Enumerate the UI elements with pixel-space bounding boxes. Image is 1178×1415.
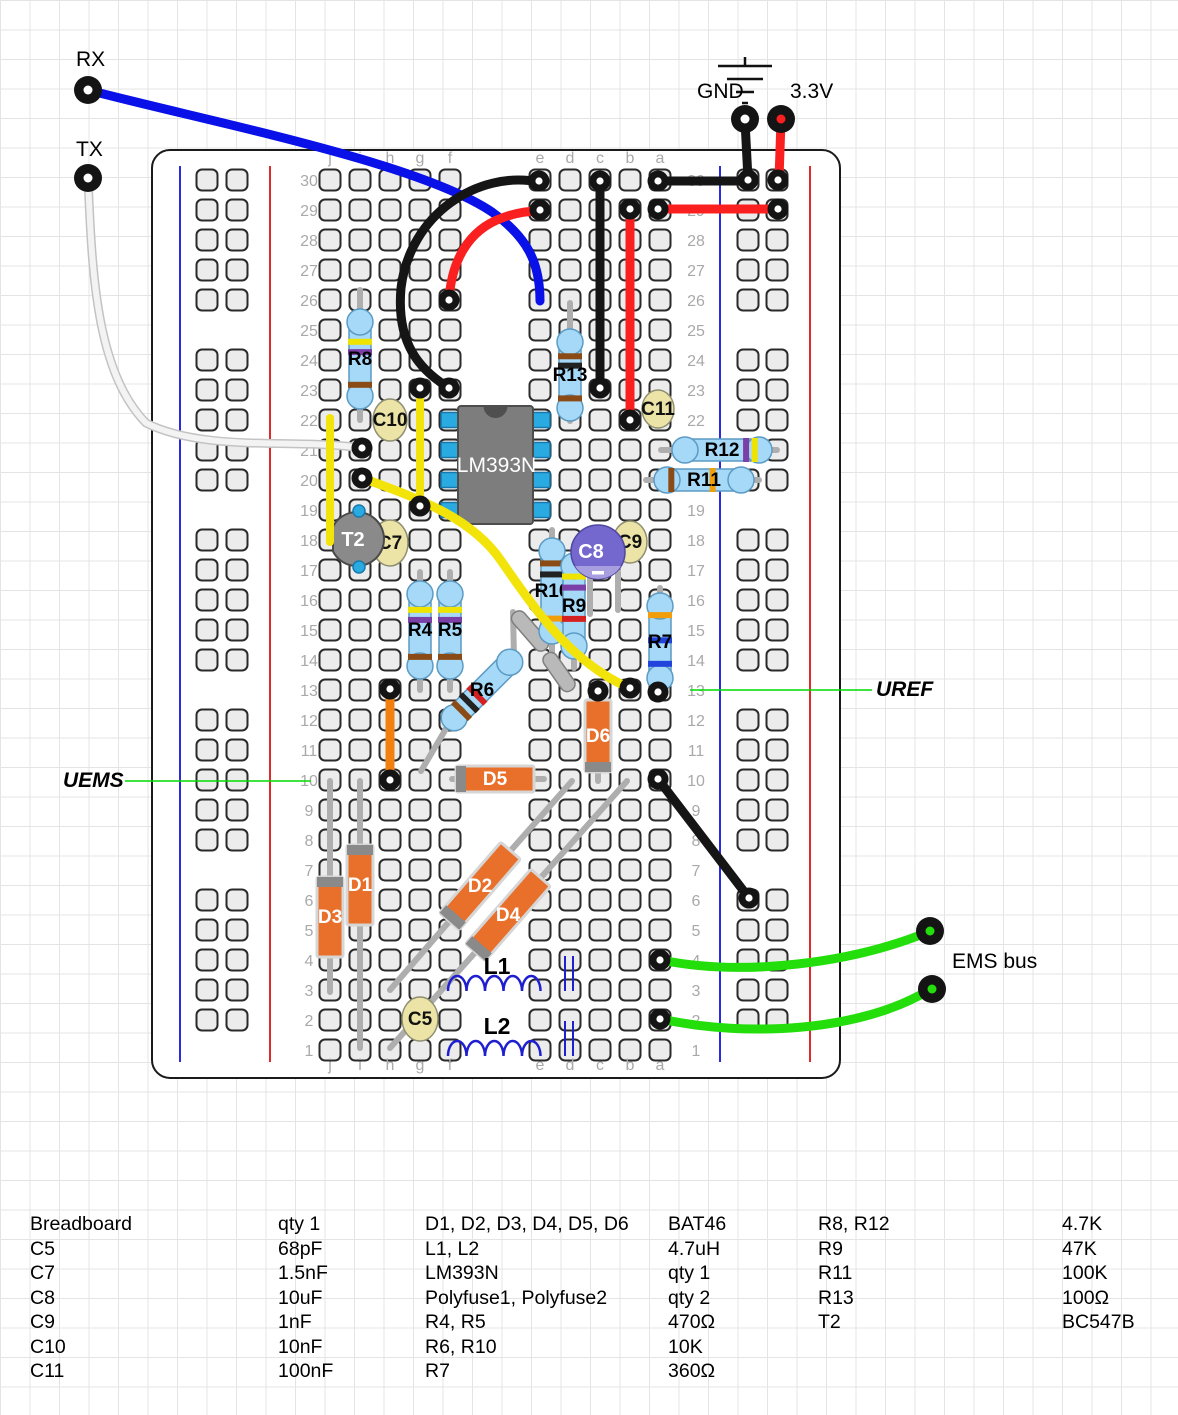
rail-hole xyxy=(738,920,759,941)
component-R12[interactable]: R12 xyxy=(672,437,772,463)
row-number: 13 xyxy=(300,683,318,700)
electrolytic-label: C8 xyxy=(578,541,604,563)
diode-label: D2 xyxy=(468,876,492,897)
breadboard-hole xyxy=(320,620,341,641)
rail-hole xyxy=(767,980,788,1001)
rail-hole xyxy=(197,650,218,671)
component-C8[interactable]: C8 xyxy=(571,525,625,579)
breadboard-hole xyxy=(620,1010,641,1031)
breadboard-hole xyxy=(590,830,611,851)
breadboard-hole xyxy=(590,620,611,641)
breadboard-hole xyxy=(650,710,671,731)
component-C10[interactable]: C10 xyxy=(373,399,408,441)
rail-hole xyxy=(197,560,218,581)
breadboard-hole xyxy=(320,260,341,281)
rail-hole xyxy=(738,380,759,401)
connection-dot-center xyxy=(656,956,663,963)
resistor-band xyxy=(668,468,674,492)
row-number: 17 xyxy=(300,563,318,580)
capacitor-label: C5 xyxy=(408,1009,433,1030)
row-number: 17 xyxy=(687,563,705,580)
rail-hole xyxy=(227,710,248,731)
parts-table-cell xyxy=(818,1335,890,1360)
parts-table-cell xyxy=(1062,1359,1135,1384)
row-number: 4 xyxy=(305,953,314,970)
breadboard-hole xyxy=(410,800,431,821)
connection-dot-center xyxy=(358,474,365,481)
connection-dot-center xyxy=(626,205,633,212)
component-C5[interactable]: C5 xyxy=(402,997,438,1041)
resistor-end xyxy=(407,581,433,607)
row-number: 28 xyxy=(687,233,705,250)
parts-table-cell: LM393N xyxy=(425,1261,629,1286)
component-LM393N[interactable]: LM393N xyxy=(441,406,550,524)
parts-table-cell: R8, R12 xyxy=(818,1212,890,1237)
rx-post-center xyxy=(84,86,93,95)
parts-table-column: qty 168pF1.5nF10uF1nF10nF100nF xyxy=(278,1212,333,1384)
row-number: 5 xyxy=(305,923,314,940)
rail-hole xyxy=(227,1010,248,1031)
column-letter: b xyxy=(626,150,635,167)
rail-hole xyxy=(197,830,218,851)
row-number: 15 xyxy=(687,623,705,640)
rail-hole xyxy=(227,230,248,251)
row-number: 23 xyxy=(687,383,705,400)
rail-hole xyxy=(197,980,218,1001)
column-letter: f xyxy=(448,1057,453,1074)
resistor-label: R5 xyxy=(438,620,463,641)
row-number: 20 xyxy=(300,473,318,490)
breadboard-hole xyxy=(350,620,371,641)
row-number: 22 xyxy=(687,413,705,430)
component-R11[interactable]: R11 xyxy=(654,467,754,493)
rail-hole xyxy=(197,950,218,971)
connection-dot-center xyxy=(386,685,393,692)
breadboard-hole xyxy=(620,830,641,851)
breadboard-hole xyxy=(650,290,671,311)
breadboard-hole xyxy=(320,320,341,341)
breadboard-hole xyxy=(620,710,641,731)
breadboard-hole xyxy=(320,170,341,191)
breadboard-hole xyxy=(590,980,611,1001)
diode-cathode-band xyxy=(317,877,343,887)
breadboard-hole xyxy=(440,320,461,341)
rail-hole xyxy=(227,740,248,761)
ems-post-2-center xyxy=(928,985,937,994)
row-number: 1 xyxy=(692,1043,701,1060)
row-number: 7 xyxy=(305,863,314,880)
rail-hole xyxy=(738,830,759,851)
parts-table-cell: qty 2 xyxy=(668,1286,726,1311)
breadboard-hole xyxy=(650,740,671,761)
inductor-label: L2 xyxy=(484,1013,511,1039)
parts-table-cell: qty 1 xyxy=(278,1212,333,1237)
breadboard-hole xyxy=(590,440,611,461)
column-letter: j xyxy=(327,1057,332,1074)
connection-dot-center xyxy=(594,687,601,694)
breadboard-hole xyxy=(590,470,611,491)
row-number: 7 xyxy=(692,863,701,880)
breadboard-hole xyxy=(620,860,641,881)
minus-mark xyxy=(592,571,604,575)
breadboard-hole xyxy=(590,500,611,521)
component-R7[interactable]: R7 xyxy=(647,593,673,691)
resistor-end xyxy=(539,538,565,564)
rail-hole xyxy=(227,470,248,491)
breadboard-hole xyxy=(560,800,581,821)
breadboard-hole xyxy=(410,260,431,281)
column-letter: c xyxy=(596,1057,604,1074)
rail-hole xyxy=(227,560,248,581)
rail-hole xyxy=(767,230,788,251)
gnd-post-center xyxy=(741,115,750,124)
rail-hole xyxy=(227,380,248,401)
breadboard-hole xyxy=(650,920,671,941)
parts-table-cell: 100Ω xyxy=(1062,1286,1135,1311)
row-number: 25 xyxy=(300,323,318,340)
breadboard-hole xyxy=(620,740,641,761)
breadboard-hole xyxy=(530,920,551,941)
breadboard-hole xyxy=(380,320,401,341)
parts-table-cell: C9 xyxy=(30,1310,132,1335)
breadboard-hole xyxy=(650,230,671,251)
breadboard-hole xyxy=(650,830,671,851)
rail-hole xyxy=(197,1010,218,1031)
rail-hole xyxy=(227,890,248,911)
connection-dot-center xyxy=(745,894,752,901)
column-letter: a xyxy=(656,150,665,167)
column-letter: d xyxy=(566,150,575,167)
rail-hole xyxy=(738,290,759,311)
circuit-canvas: jjiihhggffeeddccbbaa11223344556677889910… xyxy=(0,0,1178,1415)
tx-post-center xyxy=(84,174,93,183)
row-number: 6 xyxy=(692,893,701,910)
rail-hole xyxy=(197,350,218,371)
parts-table-cell: R11 xyxy=(818,1261,890,1286)
breadboard-hole xyxy=(440,230,461,251)
rail-hole xyxy=(767,770,788,791)
breadboard-hole xyxy=(440,350,461,371)
component-R4[interactable]: R4 xyxy=(407,581,433,679)
rail-hole xyxy=(197,800,218,821)
rail-hole xyxy=(767,620,788,641)
breadboard-hole xyxy=(620,470,641,491)
parts-table-cell xyxy=(1062,1335,1135,1360)
breadboard-hole xyxy=(350,740,371,761)
resistor-band xyxy=(752,438,758,462)
parts-table-column: BreadboardC5C7C8C9C10C11 xyxy=(30,1212,132,1384)
breadboard-hole xyxy=(530,950,551,971)
row-number: 3 xyxy=(692,983,701,1000)
row-number: 24 xyxy=(300,353,318,370)
rx-label: RX xyxy=(76,48,105,72)
rail-hole xyxy=(227,290,248,311)
breadboard-hole xyxy=(620,500,641,521)
breadboard-hole xyxy=(320,710,341,731)
breadboard-hole xyxy=(650,260,671,281)
breadboard-hole xyxy=(530,830,551,851)
component-R13[interactable]: R13 xyxy=(553,329,588,421)
rail-hole xyxy=(197,470,218,491)
ic-pin xyxy=(532,413,550,428)
breadboard-hole xyxy=(350,710,371,731)
breadboard-hole xyxy=(320,560,341,581)
connection-dot-center xyxy=(626,416,633,423)
breadboard-hole xyxy=(650,350,671,371)
rail-hole xyxy=(197,200,218,221)
breadboard-hole xyxy=(320,200,341,221)
diode-cathode-band xyxy=(585,762,611,772)
connection-dot-center xyxy=(774,176,781,183)
v33-label: 3.3V xyxy=(790,80,833,104)
breadboard-hole xyxy=(620,590,641,611)
resistor-band xyxy=(648,612,672,618)
rail-hole xyxy=(767,290,788,311)
column-letter: a xyxy=(656,1057,665,1074)
column-letter: h xyxy=(386,1057,395,1074)
parts-table-cell: 10nF xyxy=(278,1335,333,1360)
breadboard-hole xyxy=(620,800,641,821)
breadboard-hole xyxy=(410,710,431,731)
row-number: 11 xyxy=(301,743,318,760)
breadboard-hole xyxy=(530,710,551,731)
breadboard-hole xyxy=(590,860,611,881)
breadboard-hole xyxy=(440,800,461,821)
breadboard-hole xyxy=(410,290,431,311)
inductor-label: L1 xyxy=(484,953,511,979)
resistor-band xyxy=(348,339,372,345)
rail-hole xyxy=(227,410,248,431)
parts-table-cell: D1, D2, D3, D4, D5, D6 xyxy=(425,1212,629,1237)
capacitor-label: C11 xyxy=(641,399,675,420)
row-number: 12 xyxy=(687,713,705,730)
diode-label: D1 xyxy=(348,875,373,896)
row-number: 30 xyxy=(300,173,318,190)
breadboard-hole xyxy=(560,440,581,461)
breadboard-hole xyxy=(590,410,611,431)
ic-pin xyxy=(532,503,550,518)
diode-cathode-band xyxy=(456,766,466,792)
breadboard-hole xyxy=(320,680,341,701)
connection-dot-center xyxy=(536,206,543,213)
resistor-band xyxy=(562,585,586,591)
breadboard-hole xyxy=(320,590,341,611)
row-number: 2 xyxy=(305,1013,314,1030)
parts-table-column: BAT464.7uHqty 1qty 2470Ω10K360Ω xyxy=(668,1212,726,1384)
breadboard-hole xyxy=(440,740,461,761)
breadboard-hole xyxy=(560,470,581,491)
rail-hole xyxy=(738,980,759,1001)
ems-post-1-center xyxy=(926,927,935,936)
breadboard-hole xyxy=(620,920,641,941)
column-letter: f xyxy=(448,150,453,167)
breadboard-hole xyxy=(620,440,641,461)
row-number: 18 xyxy=(300,533,318,550)
rail-hole xyxy=(738,410,759,431)
connection-dot-center xyxy=(654,205,661,212)
breadboard-hole xyxy=(650,560,671,581)
transistor-label: T2 xyxy=(341,529,364,551)
rail-hole xyxy=(197,770,218,791)
resistor-band xyxy=(408,654,432,660)
parts-table-cell: 1nF xyxy=(278,1310,333,1335)
parts-table-cell: 470Ω xyxy=(668,1310,726,1335)
rail-hole xyxy=(738,230,759,251)
parts-table-cell: Polyfuse1, Polyfuse2 xyxy=(425,1286,629,1311)
rail-hole xyxy=(738,350,759,371)
breadboard-hole xyxy=(560,500,581,521)
resistor-label: R9 xyxy=(562,596,586,617)
uref-label: UREF xyxy=(876,678,933,702)
diode-label: D6 xyxy=(586,726,610,747)
parts-table-cell: C8 xyxy=(30,1286,132,1311)
row-number: 29 xyxy=(300,203,318,220)
breadboard-hole xyxy=(530,320,551,341)
rail-hole xyxy=(767,410,788,431)
row-number: 19 xyxy=(687,503,705,520)
connection-dot-center xyxy=(774,205,781,212)
breadboard-hole xyxy=(440,950,461,971)
column-letter: i xyxy=(358,1057,362,1074)
connection-dot-center xyxy=(654,177,661,184)
breadboard-hole xyxy=(620,980,641,1001)
breadboard-hole xyxy=(380,620,401,641)
parts-table-cell: Breadboard xyxy=(30,1212,132,1237)
transistor-leg xyxy=(353,561,365,573)
parts-table-cell: C7 xyxy=(30,1261,132,1286)
diode-cathode-band xyxy=(347,845,373,855)
rail-hole xyxy=(738,710,759,731)
resistor-band xyxy=(438,654,462,660)
parts-table-cell: 68pF xyxy=(278,1237,333,1262)
rail-hole xyxy=(738,650,759,671)
breadboard-hole xyxy=(380,260,401,281)
breadboard-hole xyxy=(590,950,611,971)
row-number: 26 xyxy=(687,293,705,310)
rail-hole xyxy=(738,740,759,761)
breadboard-hole xyxy=(590,1010,611,1031)
rail-hole xyxy=(767,260,788,281)
row-number: 9 xyxy=(305,803,314,820)
connection-dot-center xyxy=(596,384,603,391)
breadboard-hole xyxy=(320,380,341,401)
column-letter: e xyxy=(536,150,545,167)
row-number: 18 xyxy=(687,533,705,550)
resistor-label: R8 xyxy=(348,349,372,370)
breadboard-hole xyxy=(560,860,581,881)
connection-dot-center xyxy=(654,775,661,782)
rail-hole xyxy=(738,770,759,791)
rail-hole xyxy=(767,830,788,851)
breadboard-hole xyxy=(350,650,371,671)
breadboard-hole xyxy=(650,860,671,881)
parts-table-column: D1, D2, D3, D4, D5, D6L1, L2LM393NPolyfu… xyxy=(425,1212,629,1384)
component-R8[interactable]: R8 xyxy=(347,309,373,409)
resistor-band xyxy=(648,661,672,667)
breadboard-hole xyxy=(560,920,581,941)
rail-hole xyxy=(197,290,218,311)
rail-hole xyxy=(227,980,248,1001)
rail-hole xyxy=(227,770,248,791)
breadboard-hole xyxy=(560,1010,581,1031)
breadboard-hole xyxy=(620,890,641,911)
resistor-band xyxy=(558,353,582,359)
breadboard-hole xyxy=(530,680,551,701)
breadboard-hole xyxy=(440,530,461,551)
breadboard-hole xyxy=(320,650,341,671)
row-number: 12 xyxy=(300,713,318,730)
breadboard-hole xyxy=(650,500,671,521)
parts-table-cell: BAT46 xyxy=(668,1212,726,1237)
breadboard-hole xyxy=(380,950,401,971)
ic-label: LM393N xyxy=(457,454,536,477)
row-number: 28 xyxy=(300,233,318,250)
breadboard-hole xyxy=(350,260,371,281)
row-number: 3 xyxy=(305,983,314,1000)
rail-hole xyxy=(227,800,248,821)
component-R5[interactable]: R5 xyxy=(437,581,463,679)
resistor-end xyxy=(728,467,754,493)
breadboard-hole xyxy=(410,830,431,851)
parts-table-cell: R6, R10 xyxy=(425,1335,629,1360)
breadboard-hole xyxy=(560,200,581,221)
rail-hole xyxy=(197,260,218,281)
breadboard-hole xyxy=(410,920,431,941)
column-letter: e xyxy=(536,1057,545,1074)
breadboard-hole xyxy=(350,230,371,251)
breadboard-hole xyxy=(560,260,581,281)
breadboard-hole xyxy=(620,620,641,641)
breadboard-hole xyxy=(560,980,581,1001)
rail-hole xyxy=(767,590,788,611)
breadboard-hole xyxy=(350,680,371,701)
row-number: 14 xyxy=(300,653,318,670)
rail-hole xyxy=(197,230,218,251)
breadboard-hole xyxy=(410,320,431,341)
resistor-band xyxy=(348,382,372,388)
parts-table-cell: R13 xyxy=(818,1286,890,1311)
component-C11[interactable]: C11 xyxy=(641,390,675,428)
parts-table-cell: 47K xyxy=(1062,1237,1135,1262)
parts-table-cell: 100K xyxy=(1062,1261,1135,1286)
parts-table-cell: T2 xyxy=(818,1310,890,1335)
breadboard-hole xyxy=(380,920,401,941)
breadboard-hole xyxy=(320,1010,341,1031)
breadboard-hole xyxy=(560,950,581,971)
breadboard-hole xyxy=(530,230,551,251)
breadboard-hole xyxy=(320,230,341,251)
row-number: 25 xyxy=(687,323,705,340)
row-number: 24 xyxy=(687,353,705,370)
component-D1[interactable]: D1 xyxy=(347,845,373,925)
component-D5[interactable]: D5 xyxy=(456,766,534,792)
rail-hole xyxy=(767,890,788,911)
rail-hole xyxy=(738,800,759,821)
component-D3[interactable]: D3 xyxy=(317,877,343,957)
rail-hole xyxy=(738,530,759,551)
breadboard-hole xyxy=(650,320,671,341)
connection-dot-center xyxy=(656,1015,663,1022)
rail-hole xyxy=(227,620,248,641)
resistor-end xyxy=(347,309,373,335)
component-D6[interactable]: D6 xyxy=(585,700,611,772)
breadboard-hole xyxy=(380,1010,401,1031)
row-number: 8 xyxy=(305,833,314,850)
column-letter: g xyxy=(416,150,425,167)
breadboard-hole xyxy=(560,740,581,761)
parts-table-column: 4.7K47K100K100ΩBC547B xyxy=(1062,1212,1135,1384)
rail-hole xyxy=(197,170,218,191)
